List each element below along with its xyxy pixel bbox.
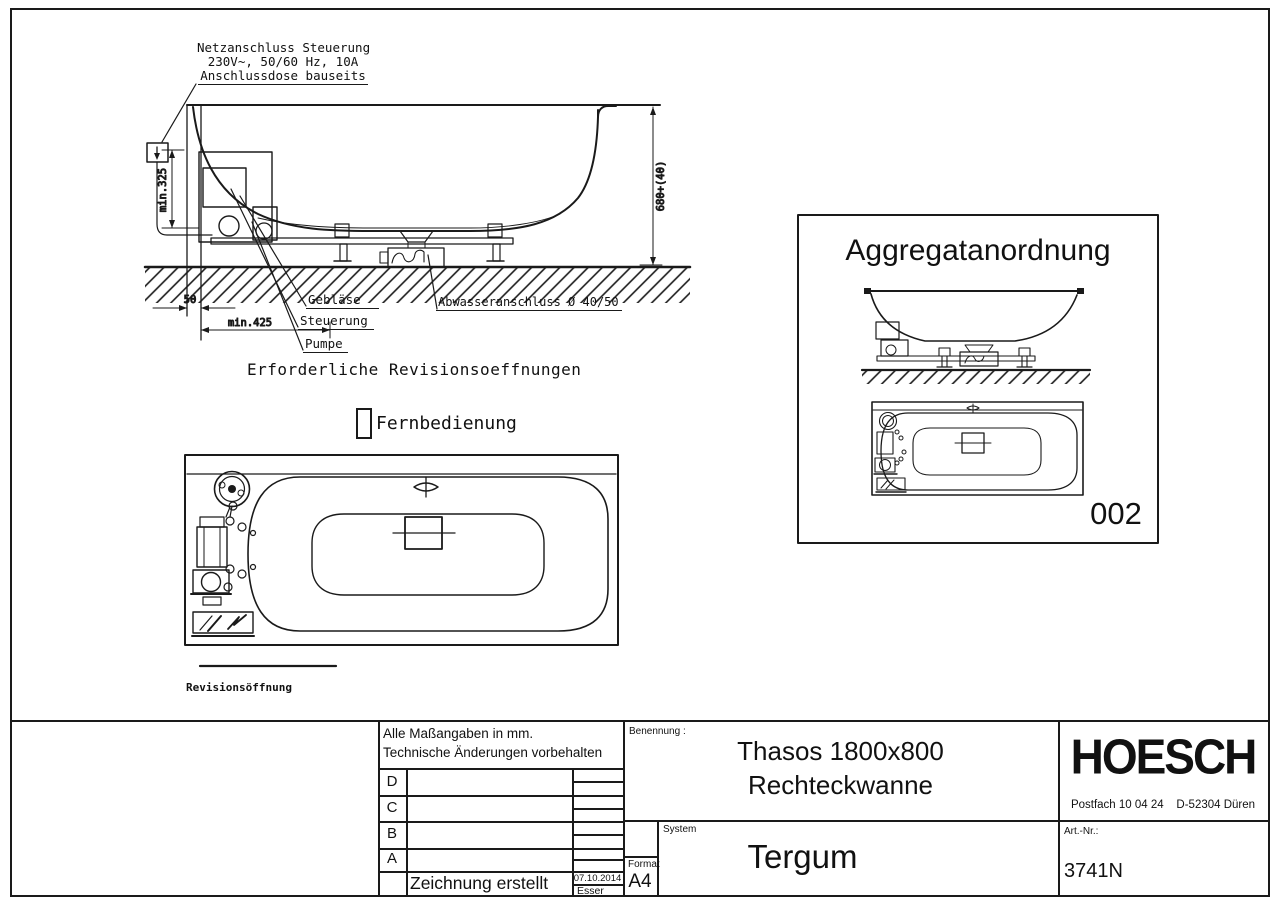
revision-opening-marker [192,612,254,636]
product-name-line2: Rechteckwanne [623,770,1058,801]
power-socket-symbol [147,143,168,162]
drawing-created-date: 07.10.2014 [572,873,623,884]
plan-view-linework [185,455,618,666]
drawing-created-by: Esser [577,885,604,897]
article-number-label: Art.-Nr.: [1064,826,1098,837]
system-section-label: System [663,824,696,835]
titleblock-line [406,768,408,895]
titleblock-line [572,834,623,836]
system-value: Tergum [657,838,1058,876]
dim-50: 50 [184,294,197,306]
blower-label: Gebläse [306,292,379,309]
titleblock-line [378,848,623,850]
titleblock-line [623,820,1268,822]
pump-label: Pumpe [303,336,348,353]
manufacturer-address: Postfach 10 04 24 D-52304 Düren [1058,799,1268,811]
aggregate-box-title: Aggregatanordnung [798,234,1158,268]
revision-row-d: D [378,773,406,790]
power-note-line1: Netzanschluss Steuerung [197,40,369,55]
drawing-created-label: Zeichnung erstellt [410,873,548,894]
aggregate-box-number: 002 [1078,496,1154,532]
dim-height: 680+(40) [655,161,667,212]
article-number-value: 3741N [1064,860,1123,883]
product-name-line1: Thasos 1800x800 [623,736,1058,767]
power-note-line3: Anschlussdose bauseits [198,68,368,85]
overflow-fitting-symbol [414,477,438,497]
format-section-label: Format [628,859,660,870]
remote-control-label: Fernbedienung [376,413,517,434]
titleblock-line [378,768,623,770]
revision-row-c: C [378,799,406,816]
titleblock-line [623,856,657,858]
dimensions-note-line1: Alle Maßangaben in mm. [383,726,533,741]
titleblock-line [572,808,623,810]
remote-control-icon [356,408,372,439]
revision-row-b: B [378,825,406,842]
revision-opening-label: Revisionsöffnung [186,681,292,694]
titleblock-top-line [10,720,1270,722]
dimensions-note-line2: Technische Änderungen vorbehalten [383,745,602,760]
drain-symbol [393,517,455,549]
dim-min-325: min.325 [157,168,169,212]
titleblock-line [572,859,623,861]
drawing-sheet: min.325 50 min.425 680+(40) [0,0,1280,905]
drain-connection-label: Abwasseranschluss Ø 40/50 [436,295,622,311]
dim-min-425: min.425 [228,317,272,329]
power-note-line2: 230V~, 50/60 Hz, 10A [197,54,369,69]
format-value: A4 [623,871,657,893]
revision-row-a: A [378,850,406,867]
titleblock-line [378,795,623,797]
required-openings-note: Erforderliche Revisionsoeffnungen [247,360,581,379]
titleblock-line [572,781,623,783]
control-label: Steuerung [298,313,374,330]
titleblock-line [378,821,623,823]
manufacturer-logo: HOESCH [1058,728,1268,785]
